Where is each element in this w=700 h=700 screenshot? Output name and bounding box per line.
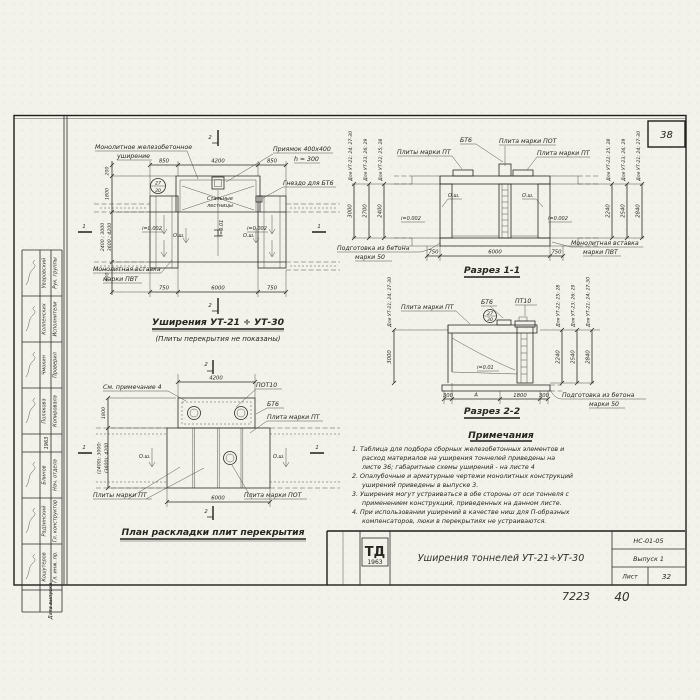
d4-axis-label: О.ш. <box>139 454 151 460</box>
d1-slope-center: i=0.01 <box>219 220 225 237</box>
signature-stroke <box>26 306 35 331</box>
d2-chain-label: Для УТ-23; 26; 29 <box>363 139 369 182</box>
d1-detail-ref: 30 <box>155 188 161 194</box>
d3-chain-value: 2540 <box>571 350 577 364</box>
d3-chain-label: Для УТ-23; 26; 29 <box>571 285 577 328</box>
d4-dim: 4200 <box>209 376 223 382</box>
d1-section-mark: 2 <box>208 135 212 141</box>
d1-section-mark: 1 <box>82 224 85 230</box>
d4-label-pot10: ПОТ10 <box>256 382 277 389</box>
signature-stroke <box>26 554 35 579</box>
stamp-name: Колпенских <box>42 303 48 334</box>
d3-chain-label: Для УТ-22; 25; 28 <box>556 285 562 328</box>
d2-label-plates-pt: Плиты марки ПТ <box>397 149 452 156</box>
d4-dim: 1800 <box>101 407 107 419</box>
d1-label-monolithic: уширение <box>116 153 150 160</box>
org-logo-year: 1963 <box>367 559 382 566</box>
d1-axis-label: О.ш. <box>243 233 255 239</box>
d4-label-plate-pot: Плита марки ПОТ <box>244 492 303 499</box>
d2-dim: 6000 <box>488 250 502 256</box>
d1-label-stairs: лестницы <box>206 203 233 209</box>
d1-label-pit: h = 300 <box>294 156 319 163</box>
d4-dim: 6000 <box>211 496 225 502</box>
d2-slope: i=0.002 <box>548 216 568 222</box>
d2-axis-label: О.ш. <box>522 193 534 199</box>
d2-label-prep: Подготовка из бетона <box>337 244 410 252</box>
d3-label-plate-pt: Плита марки ПТ <box>401 304 455 311</box>
d1-dim: 6000 <box>211 286 225 292</box>
d3-chain-label: Для УТ-21; 24; 27-30 <box>387 277 393 328</box>
signature-stroke <box>26 352 35 377</box>
d1-dim: 850 <box>267 159 278 165</box>
d1-label-insert: марки ПВТ <box>103 276 139 283</box>
d2-chain-value: 3000 <box>348 204 354 218</box>
d1-label-monolithic: Монолитное железобетонное <box>95 143 192 151</box>
drawing-sheet: 38 Рук. группы Уваровский Исполнители Ко… <box>0 0 700 700</box>
d4-axis-label: О.ш. <box>273 454 285 460</box>
stamp-name: Чмокин <box>42 354 48 375</box>
d4-section-mark: 2 <box>204 509 208 515</box>
d1-dim: 4200 <box>211 159 225 165</box>
d1-axis-label: О.ш. <box>173 233 185 239</box>
d4-label-plates-pt: Плиты марки ПТ <box>93 492 148 499</box>
d1-section-mark: 2 <box>208 303 212 309</box>
d2-chain-value: 2540 <box>621 204 627 218</box>
d2-chain-value: 2700 <box>363 204 369 218</box>
corner-sheet-number: 38 <box>660 130 673 141</box>
d3-detail-ref: 30 <box>487 317 493 323</box>
d2-chain-label: Для УТ-21; 24; 27-30 <box>348 131 354 182</box>
d1-section-mark: 1 <box>317 224 320 230</box>
note-line: расход материалов на уширения тоннелей п… <box>361 455 555 462</box>
d1-label-socket: Гнездо для БТ6 <box>283 180 334 187</box>
d4-title: План раскладки плит перекрытия <box>121 527 304 538</box>
d3-slope: i=0.01 <box>477 365 494 371</box>
d1-label-insert: Монолитная вставка <box>93 266 161 273</box>
issue-number: Выпуск 1 <box>633 555 664 563</box>
d2-label-insert: марки ПВТ <box>583 249 619 256</box>
d4-dim: (3600); 4200 <box>104 443 110 474</box>
d4-section-mark: 1 <box>315 445 318 451</box>
d4-dim: (2400); 3000; <box>97 442 103 475</box>
d2-title: Разрез 1-1 <box>464 265 520 276</box>
d1-slope: i=0.002 <box>247 226 267 232</box>
d3-dim: 300 <box>539 393 550 399</box>
d4-label-see-note: См. примечание 4 <box>103 384 162 391</box>
signature-stroke <box>26 398 35 423</box>
note-line: листе 36; габаритные схемы уширений - на… <box>361 463 535 471</box>
sheet-number: 32 <box>662 573 671 581</box>
d2-chain-label: Для УТ-23; 26; 29 <box>621 139 627 182</box>
d1-slope: i=0.002 <box>142 226 162 232</box>
stamp-role: Исполнители <box>53 301 59 337</box>
stamp-role: Проверил <box>53 351 59 377</box>
stamp-name: Уваровский <box>42 257 48 288</box>
d2-label-plate-pt: Плита марки ПТ <box>537 150 591 157</box>
note-line: компенсаторов, люки в перекрытиях не уст… <box>362 518 546 525</box>
sheet-label: Лист <box>621 574 638 581</box>
d2-chain-value: 2240 <box>606 204 612 218</box>
stamp-role: Дата выпуска <box>48 583 54 621</box>
note-line: 3. Уширения могут устраиваться в обе сто… <box>352 490 570 498</box>
note-line: уширений приведены в выпуске 3. <box>361 482 478 489</box>
d3-chain-value: 2840 <box>586 350 592 364</box>
note-line: 1. Таблица для подбора сборных железобет… <box>352 445 564 453</box>
d1-dim: 750 <box>267 286 278 292</box>
d3-label-pt10: ПТ10 <box>515 298 531 305</box>
d1-label-pit: Приямок 400x400 <box>273 146 331 153</box>
d1-dim: 850 <box>159 159 170 165</box>
handwritten-code: 7223 <box>562 590 590 603</box>
stamp-year: 1963 <box>44 437 50 450</box>
d2-chain-label: Для УТ-22; 25; 28 <box>606 139 612 182</box>
d1-label-stairs: Стальные <box>207 196 233 202</box>
d2-label-prep: марки 50 <box>355 254 385 261</box>
d1-dim: 3600 ; 4200 <box>107 223 113 251</box>
signature-stroke <box>26 462 35 487</box>
sheet-canvas: 38 Рук. группы Уваровский Исполнители Ко… <box>0 0 700 700</box>
d2-dim: 750 <box>428 250 439 256</box>
d1-dim: 200 <box>105 167 111 176</box>
stamp-name: Блинов <box>42 465 48 484</box>
d2-label-bt6: БТ6 <box>460 137 472 144</box>
d3-dim: 300 <box>443 393 454 399</box>
sheet-frame <box>14 116 686 586</box>
d1-dim: 750 <box>159 286 170 292</box>
stamp-name: Полякова <box>42 398 48 423</box>
note-line: 4. При использовании уширений в качестве… <box>352 508 570 516</box>
d3-detail-ref: 27 <box>487 311 493 317</box>
d2-axis-label: О.ш. <box>448 193 460 199</box>
notes-header: Примечания <box>468 430 534 441</box>
signature-stroke <box>26 260 35 285</box>
d3-label-prep: марки 50 <box>589 401 619 408</box>
org-logo: ТД <box>365 545 385 560</box>
note-line: 2. Опалубочные и арматурные чертежи моно… <box>352 472 573 480</box>
stamp-role: Гл. инж. пр. <box>53 551 59 582</box>
titleblock-title: Уширения тоннелей УТ-21÷УТ-30 <box>418 553 585 564</box>
d3-chain-label: Для УТ-21; 24; 27-30 <box>586 277 592 328</box>
d2-dim: 750 <box>551 250 562 256</box>
d2-chain-value: 2400 <box>378 204 384 218</box>
d4-section-mark: 2 <box>204 362 208 368</box>
d3-chain-value: 2240 <box>556 350 562 364</box>
stamp-name: Радзинский <box>42 505 48 537</box>
d1-subtitle: (Плиты перекрытия не показаны) <box>155 335 280 343</box>
d2-label-plate-pot: Плита марки ПОТ <box>499 138 558 145</box>
stamp-role: Копировала <box>53 395 59 427</box>
d3-dim: А <box>473 393 478 399</box>
d4-label-bt6: БТ6 <box>267 401 279 408</box>
stamp-role: Гл. конструктор <box>53 500 59 542</box>
handwritten-sheet: 40 <box>614 590 630 604</box>
d1-dim: 2400 ; 3000 <box>100 223 106 251</box>
d3-title: Разрез 2-2 <box>464 406 520 417</box>
note-line: применением конструкций, приведенных на … <box>362 500 562 507</box>
d3-label-bt6: БТ6 <box>481 299 493 306</box>
stamp-role: Нач. отдела <box>53 459 59 491</box>
d2-chain-label: Для УТ-22; 25; 28 <box>378 139 384 182</box>
d3-dim: 1800 <box>513 393 527 399</box>
d1-title: Уширения УТ-21 ÷ УТ-30 <box>152 317 285 328</box>
d1-dim: 1800 <box>105 188 111 200</box>
stamp-name: Кошутеров <box>42 552 48 581</box>
doc-code: НС-01-05 <box>633 537 663 545</box>
d4-section-mark: 1 <box>82 445 85 451</box>
d3-chain-value: 3000 <box>387 350 393 364</box>
d2-chain-label: Для УТ-21; 24; 27-30 <box>636 131 642 182</box>
d2-chain-value: 2840 <box>636 204 642 218</box>
stamp-role: Рук. группы <box>53 257 59 288</box>
d2-label-insert: Монолитная вставка <box>571 240 639 247</box>
d1-detail-ref: 27 <box>155 181 161 187</box>
d2-slope: i=0.002 <box>401 216 421 222</box>
signature-stroke <box>26 508 35 533</box>
d3-label-prep: Подготовка из бетона <box>562 391 635 399</box>
d4-label-plate-pt: Плита марки ПТ <box>267 414 321 421</box>
